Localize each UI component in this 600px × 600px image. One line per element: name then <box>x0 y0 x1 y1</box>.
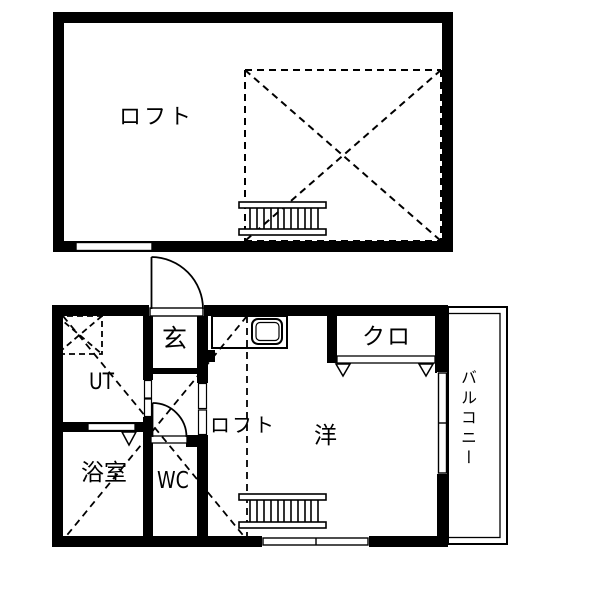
label-wc: WC <box>157 470 189 493</box>
lower-plan <box>52 257 507 547</box>
closet-wall-right <box>435 316 448 373</box>
lower-wall-bottom <box>52 536 448 547</box>
label-western-room: 洋 <box>314 425 337 448</box>
wall-wc-top <box>186 435 198 447</box>
genkan-step-edge <box>152 368 197 374</box>
ut-door-panel-2 <box>145 399 152 417</box>
genkan-step-block <box>197 350 215 362</box>
hall-room-panel-2 <box>199 410 207 435</box>
upper-wall-left <box>53 12 64 252</box>
closet-triangle-right-icon <box>419 364 433 376</box>
label-utility: UT <box>89 372 114 394</box>
lower-stairs-icon <box>239 494 326 528</box>
floor-plan-page: ロフト 玄 UT 浴室 WC ロフト 洋 クロ バルコニー <box>0 0 600 600</box>
label-bath: 浴室 <box>81 462 127 485</box>
label-balcony: バルコニー <box>459 369 475 469</box>
upper-wall-top <box>53 12 453 23</box>
entrance-threshold <box>150 308 203 316</box>
bath-sliding-door <box>88 424 135 431</box>
wc-threshold <box>151 436 187 443</box>
upper-plan <box>53 12 453 252</box>
ut-door-panel-1 <box>145 381 152 399</box>
door-markers <box>122 364 433 445</box>
floor-plan-drawing <box>0 0 600 600</box>
upper-void-dashed-outline <box>245 70 441 241</box>
label-loft-lower: ロフト <box>210 415 276 435</box>
bath-triangle-icon <box>122 432 136 445</box>
upper-window <box>76 243 152 251</box>
balcony-rail <box>448 307 507 544</box>
wall-ut-hall <box>143 316 153 537</box>
closet-wall-left <box>327 316 337 363</box>
upper-void-x-cross <box>245 70 441 241</box>
closet-triangle-left-icon <box>336 364 350 376</box>
closet-door-track <box>337 356 435 363</box>
label-closet: クロ <box>362 326 412 349</box>
kitchen-counter-icon <box>212 316 287 348</box>
label-entrance: 玄 <box>162 326 187 351</box>
hall-room-panel-1 <box>199 384 207 409</box>
upper-stairs-icon <box>239 202 326 235</box>
upper-wall-right <box>442 12 453 252</box>
entrance-door-icon <box>152 257 204 309</box>
lower-wall-top <box>52 305 448 316</box>
label-loft-upper: ロフト <box>119 107 194 129</box>
